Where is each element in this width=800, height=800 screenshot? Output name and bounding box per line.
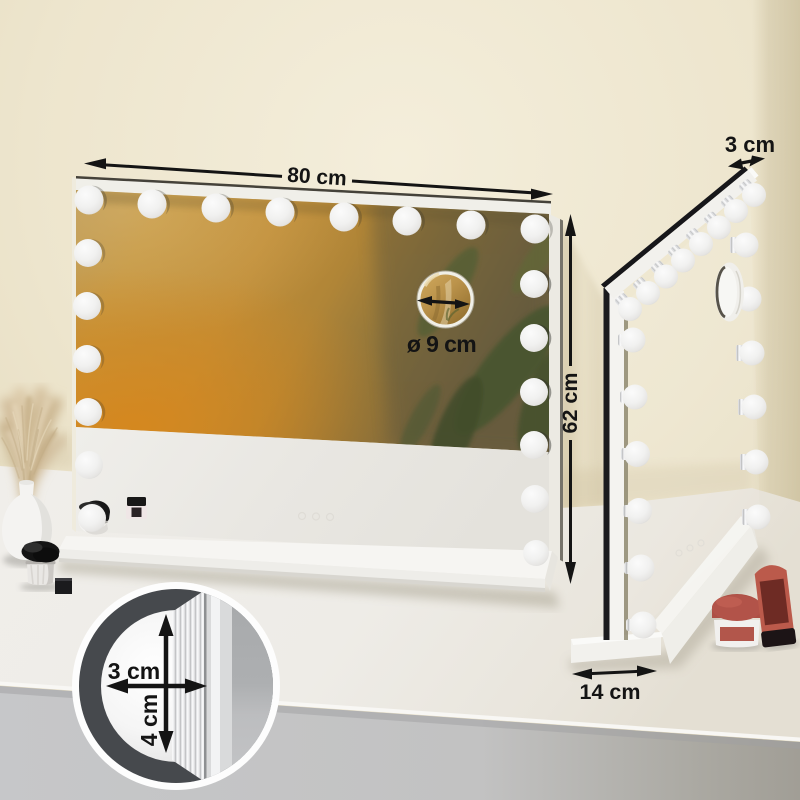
svg-text:62 cm: 62 cm [558, 373, 582, 434]
svg-text:3 cm: 3 cm [725, 132, 775, 157]
svg-text:ø 9 cm: ø 9 cm [407, 331, 476, 357]
svg-text:80 cm: 80 cm [287, 164, 348, 191]
svg-text:4 cm: 4 cm [136, 694, 162, 746]
svg-text:3 cm: 3 cm [108, 658, 160, 684]
svg-text:14 cm: 14 cm [580, 680, 641, 704]
